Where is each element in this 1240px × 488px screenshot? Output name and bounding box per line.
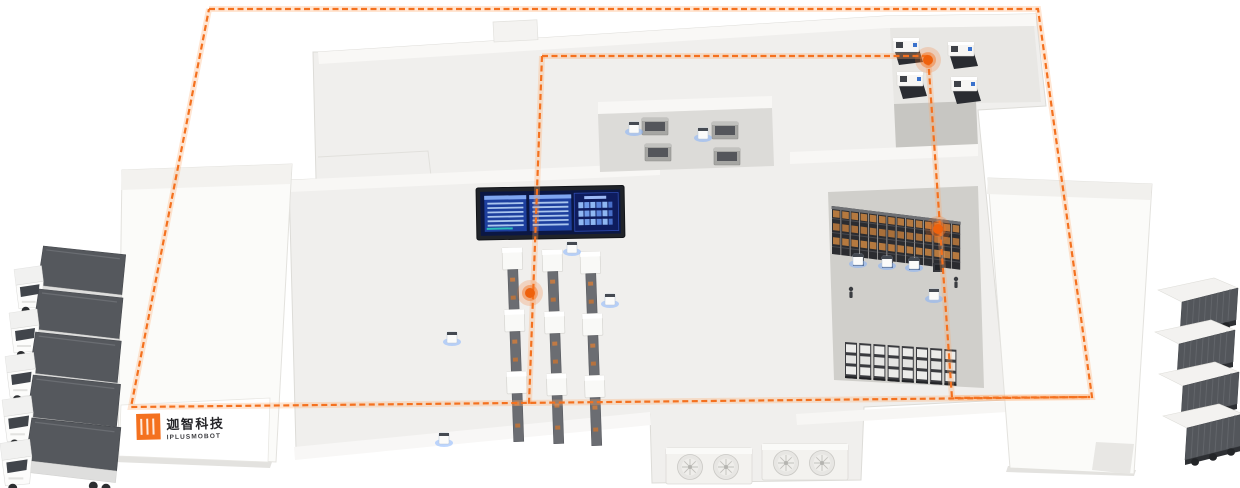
route-waypoint (517, 280, 543, 306)
production-dashboard (476, 185, 625, 240)
worker (954, 277, 958, 288)
rack-unit (916, 347, 928, 384)
dock-door (1092, 442, 1134, 474)
rack-bay (887, 213, 897, 262)
rack-bay (850, 208, 860, 257)
buffer-machine (645, 144, 671, 161)
worker (849, 287, 853, 298)
rack-unit (859, 343, 871, 380)
rack-bay (896, 214, 906, 263)
hvac-unit (666, 448, 752, 484)
rack-bay (905, 215, 915, 264)
route-waypoint (915, 47, 941, 73)
rack-unit (873, 344, 885, 381)
assembly-line-layer (502, 247, 607, 446)
rack-bay (868, 210, 878, 259)
rack-unit (902, 346, 914, 383)
factory-map-canvas: 迦智科技 IPLUSMOBOT (0, 0, 1240, 488)
buffer-machine (712, 122, 738, 139)
rack-bay (878, 212, 888, 261)
rack-bay (832, 206, 842, 255)
rack-bay (951, 221, 961, 270)
logo-text-cn: 迦智科技 (166, 416, 224, 433)
truck-fleet-left (0, 246, 126, 488)
buffer-machine-zone-floor (598, 108, 774, 172)
rack-unit (845, 342, 857, 379)
route-waypoint (925, 216, 951, 242)
rack-bay (841, 207, 851, 256)
logo-mark (136, 413, 161, 440)
rooftop-block (493, 20, 538, 42)
logo-text-en: IPLUSMOBOT (167, 433, 222, 441)
truck-fleet-right (1155, 278, 1240, 466)
left-dock-building: 迦智科技 IPLUSMOBOT (114, 164, 292, 468)
buffer-machine (642, 118, 668, 135)
smart-factory-illustration: 迦智科技 IPLUSMOBOT (0, 0, 1240, 488)
buffer-machine (714, 148, 740, 165)
rack-unit (888, 345, 900, 382)
truck-right (1163, 404, 1240, 466)
brand-logo: 迦智科技 IPLUSMOBOT (136, 412, 225, 442)
rack-unit (930, 348, 942, 385)
hvac-unit (762, 444, 848, 480)
rack-bay (859, 209, 869, 258)
